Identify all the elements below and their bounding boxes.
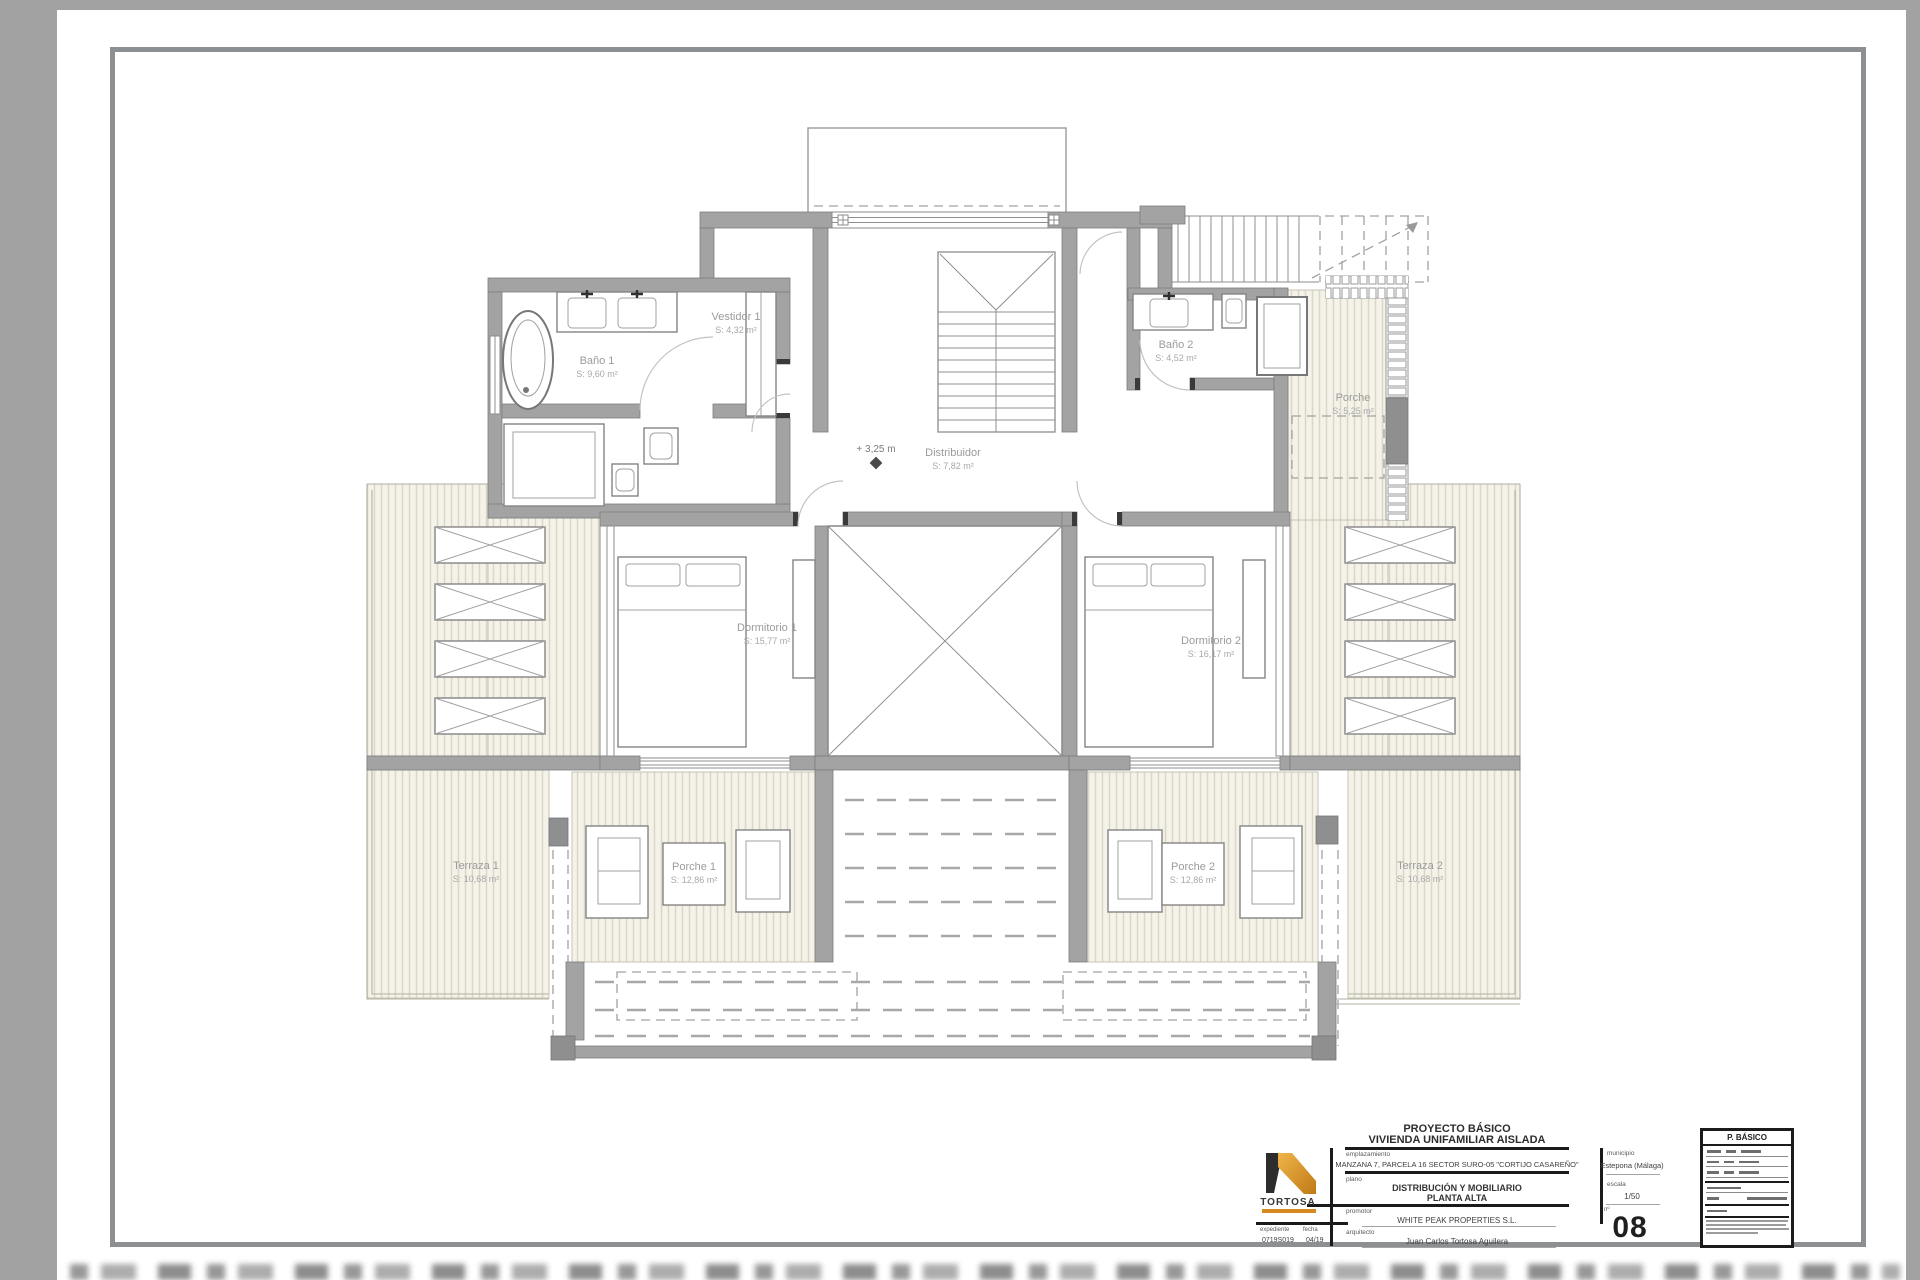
logo-text: TORTOSA [1256,1197,1320,1208]
room-label: Porche 2 [1171,861,1215,873]
promotor-value: WHITE PEAK PROPERTIES S.L. [1330,1216,1584,1225]
desk-icon [793,560,815,678]
emplazamiento-value: MANZANA 7, PARCELA 16 SECTOR SURO-05 "CO… [1322,1160,1592,1169]
room-area: S: 15,77 m² [744,636,791,646]
armchair-icon [1108,830,1162,912]
armchair-icon [736,830,790,912]
room-area: S: 5,25 m² [1332,406,1374,416]
stamp-header: P. BÁSICO [1703,1131,1791,1142]
arquitecto-value: Juan Carlos Tortosa Aguilera [1330,1237,1584,1246]
room-area: S: 10,68 m² [453,874,500,884]
level-text: + 3,25 m [856,444,895,455]
room-area: S: 10,68 m² [1397,874,1444,884]
escala-value: 1/50 [1598,1192,1666,1201]
municipio-label: municipio [1607,1150,1634,1157]
drawing-viewer: Baño 1 S: 9,60 m² Vestidor 1 S: 4,32 m² … [0,0,1920,1280]
room-label: Terraza 2 [1397,860,1443,872]
room-label: Porche 1 [672,861,716,873]
room-label: Distribuidor [925,447,981,459]
desk-icon [1243,560,1265,678]
shower-icon [504,424,604,506]
double-height-void [828,526,1062,756]
louver-strip-horizontal [1326,276,1408,298]
plano-value-line2: PLANTA ALTA [1330,1193,1584,1203]
louver-strip-vertical [1386,298,1408,398]
table-icon [1162,843,1224,905]
tortosa-logo [1260,1150,1318,1196]
expediente-label: expediente [1260,1227,1289,1233]
bedroom-2-furniture [1085,557,1265,747]
table-icon [663,843,725,905]
next-page-preview [70,1264,1900,1280]
room-area: S: 9,60 m² [576,369,618,379]
room-label: Vestidor 1 [712,311,761,323]
door-swings [640,232,1190,526]
room-label: Baño 2 [1159,339,1194,351]
room-area: S: 16,17 m² [1188,649,1235,659]
room-area: S: 7,82 m² [932,461,974,471]
bedroom-1-furniture [618,557,815,747]
plano-label: plano [1346,1176,1362,1183]
bathtub-icon [503,311,553,409]
level-marker [870,457,883,470]
fecha-label: fecha [1303,1227,1318,1233]
fecha-value: 04/19 [1306,1237,1324,1244]
room-label: Dormitorio 2 [1181,635,1241,647]
room-label: Baño 1 [580,355,615,367]
terraza-2-area [1348,770,1520,998]
room-label: Porche [1336,392,1371,404]
interior-stair [938,252,1055,432]
expediente-value: 0719S019 [1262,1237,1294,1244]
stamp-box: P. BÁSICO [1700,1128,1794,1248]
arquitecto-label: arquitecto [1346,1229,1375,1236]
escala-label: escala [1607,1181,1626,1188]
floor-plan: Baño 1 S: 9,60 m² Vestidor 1 S: 4,32 m² … [0,0,1920,1280]
room-label: Terraza 1 [453,860,499,872]
room-area: S: 12,86 m² [671,875,718,885]
project-title-line2: VIVIENDA UNIFAMILIAR AISLADA [1345,1134,1569,1146]
sheet-number: 08 [1598,1211,1662,1245]
municipio-value: Estepona (Málaga) [1598,1161,1666,1170]
room-area: S: 4,32 m² [715,325,757,335]
promotor-label: promotor [1346,1208,1372,1215]
room-area: S: 12,86 m² [1170,875,1217,885]
plano-value-line1: DISTRIBUCIÓN Y MOBILIARIO [1330,1183,1584,1193]
logo-subtitle-bar [1262,1209,1316,1213]
terraza-1-area [367,770,549,998]
room-area: S: 4,52 m² [1155,353,1197,363]
room-label: Dormitorio 1 [737,622,797,634]
emplazamiento-label: emplazamiento [1346,1151,1390,1158]
